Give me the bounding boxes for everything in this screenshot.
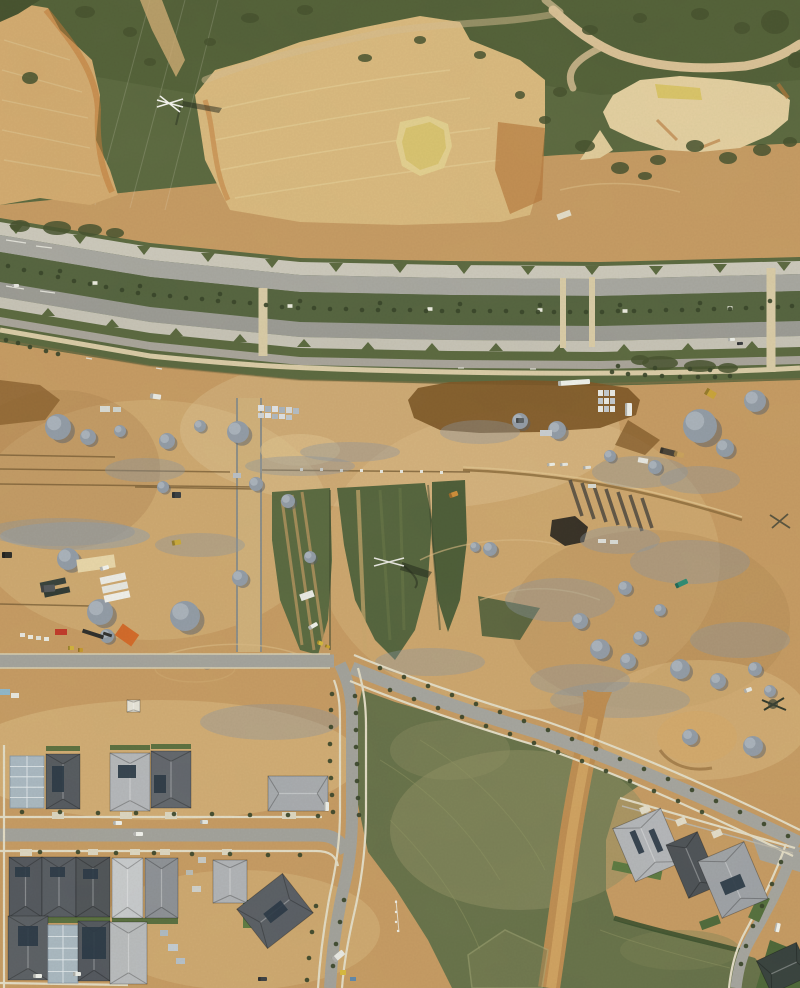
aerial-orthophoto <box>0 0 800 988</box>
texture-grain-overlay <box>0 0 800 988</box>
screenshot-root <box>0 0 800 988</box>
